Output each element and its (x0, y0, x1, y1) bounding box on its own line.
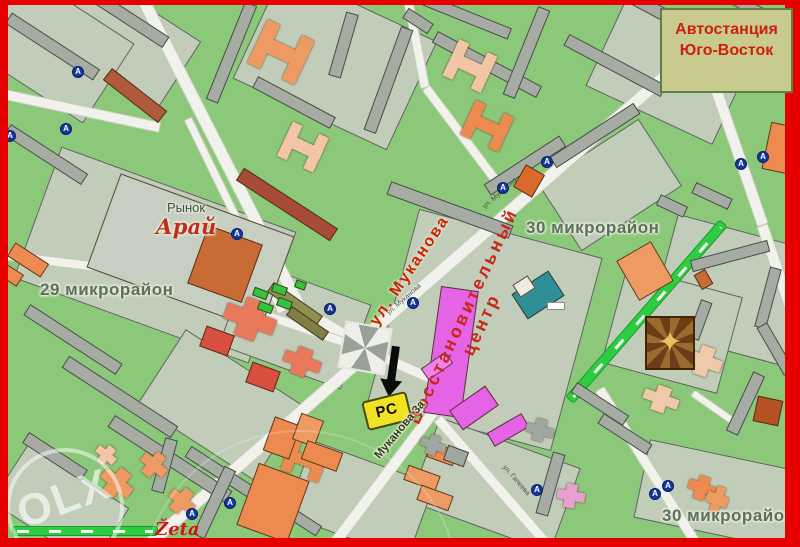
bus-stop-icon: А (72, 66, 84, 78)
bus-stop-icon: А (541, 156, 553, 168)
building (785, 439, 800, 485)
building (277, 121, 329, 172)
mosque-ornament-icon: ✦ (657, 326, 682, 359)
small-map-chip (547, 302, 565, 310)
bus-stop-icon: А (497, 182, 509, 194)
district-29-label: 29 микрорайон (40, 280, 173, 300)
bus-stop-icon: А (324, 303, 336, 315)
autostation-label-line2: Юго-Восток (662, 40, 791, 61)
apartment-building-bar (691, 182, 732, 210)
autostation-info-box: Автостанция Юго-Восток (660, 8, 793, 93)
mosque-building: ✦ (645, 316, 695, 370)
arrow-shaft (387, 346, 400, 383)
building (640, 381, 683, 418)
building (761, 122, 800, 176)
autostation-label-line1: Автостанция (662, 19, 791, 40)
bus-stop-icon: А (4, 130, 16, 142)
building (753, 396, 784, 427)
map-canvas[interactable]: ✦ ААААААААААААААА Рынок Арай 29 микрорай… (0, 0, 800, 547)
market-label: Рынок (136, 200, 236, 215)
bus-stop-icon: А (60, 123, 72, 135)
bus-stop-icon: А (531, 484, 543, 496)
bus-stop-icon: А (407, 297, 419, 309)
district-30-top-label: 30 микрорайон (526, 218, 659, 238)
market-name-label: Арай (136, 214, 236, 239)
building (555, 482, 587, 510)
bus-stop-icon: А (649, 488, 661, 500)
bus-stop-icon: А (757, 151, 769, 163)
district-30-bottom-label: 30 микрорайон (662, 506, 795, 526)
bus-stop-icon: А (224, 497, 236, 509)
apartment-building-bar (656, 194, 688, 218)
bus-stop-icon: А (735, 158, 747, 170)
bus-stop-icon: А (662, 480, 674, 492)
zeta-label: Žeta (155, 519, 200, 540)
